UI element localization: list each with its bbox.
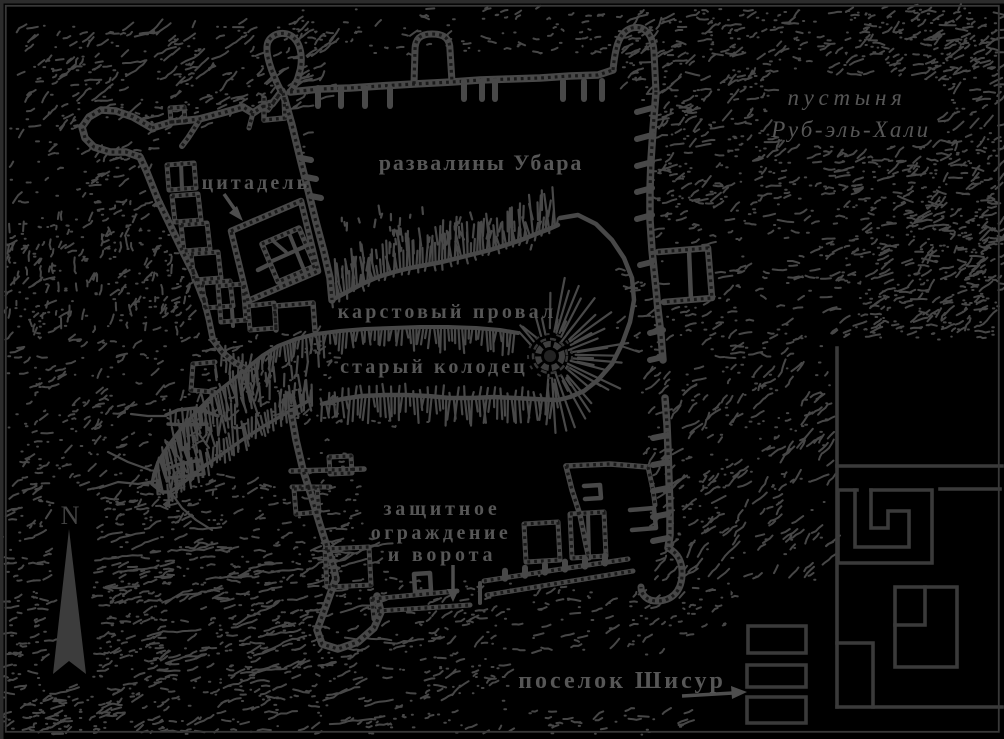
svg-text:старый колодец: старый колодец: [340, 356, 528, 378]
svg-text:ограждение: ограждение: [371, 522, 512, 544]
svg-text:пустыня: пустыня: [787, 85, 906, 110]
svg-text:защитное: защитное: [383, 498, 500, 520]
svg-text:цитадель: цитадель: [202, 172, 311, 194]
svg-text:поселок Шисур: поселок Шисур: [518, 668, 726, 694]
svg-text:развалины Убара: развалины Убара: [379, 150, 584, 175]
svg-text:Руб-эль-Хали: Руб-эль-Хали: [770, 117, 931, 142]
svg-text:карстовый провал: карстовый провал: [338, 301, 557, 323]
svg-text:N: N: [61, 501, 80, 530]
svg-text:и ворота: и ворота: [388, 544, 497, 566]
